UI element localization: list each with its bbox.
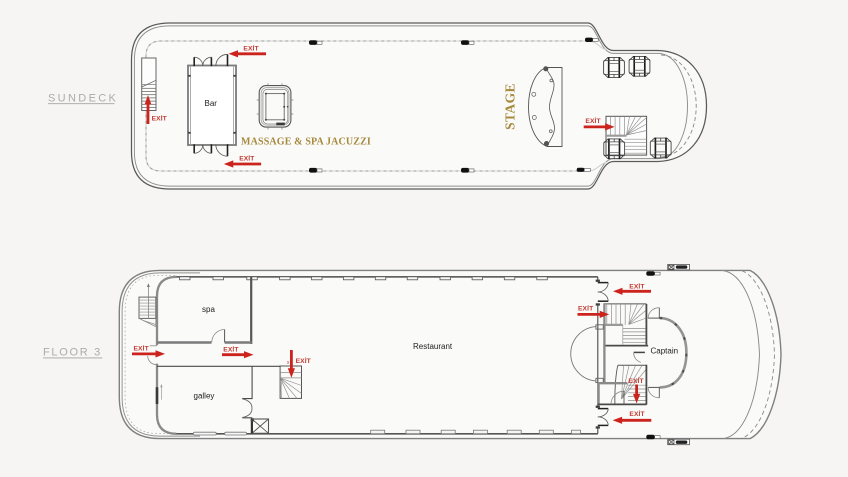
svg-text:EXİT: EXİT (296, 356, 312, 365)
svg-text:galley: galley (194, 392, 215, 401)
svg-text:Bar: Bar (205, 99, 218, 108)
svg-text:EXİT: EXİT (578, 303, 594, 312)
svg-text:MASSAGE & SPA JACUZZI: MASSAGE & SPA JACUZZI (241, 136, 371, 147)
svg-text:EXİT: EXİT (152, 113, 168, 122)
svg-text:FLOOR 3: FLOOR 3 (43, 346, 102, 358)
svg-text:EXİT: EXİT (628, 376, 644, 385)
svg-text:EXİT: EXİT (223, 344, 239, 353)
svg-text:EXİT: EXİT (239, 154, 255, 163)
svg-text:EXİT: EXİT (629, 409, 645, 418)
svg-text:EXİT: EXİT (629, 281, 645, 290)
svg-text:Captain: Captain (651, 347, 679, 356)
svg-text:STAGE: STAGE (503, 83, 518, 130)
svg-text:SUNDECK: SUNDECK (48, 92, 118, 104)
svg-text:EXİT: EXİT (243, 43, 259, 52)
svg-text:EXİT: EXİT (585, 116, 601, 125)
svg-text:Restaurant: Restaurant (413, 342, 453, 351)
svg-text:spa: spa (202, 305, 215, 314)
svg-text:EXİT: EXİT (134, 344, 150, 353)
